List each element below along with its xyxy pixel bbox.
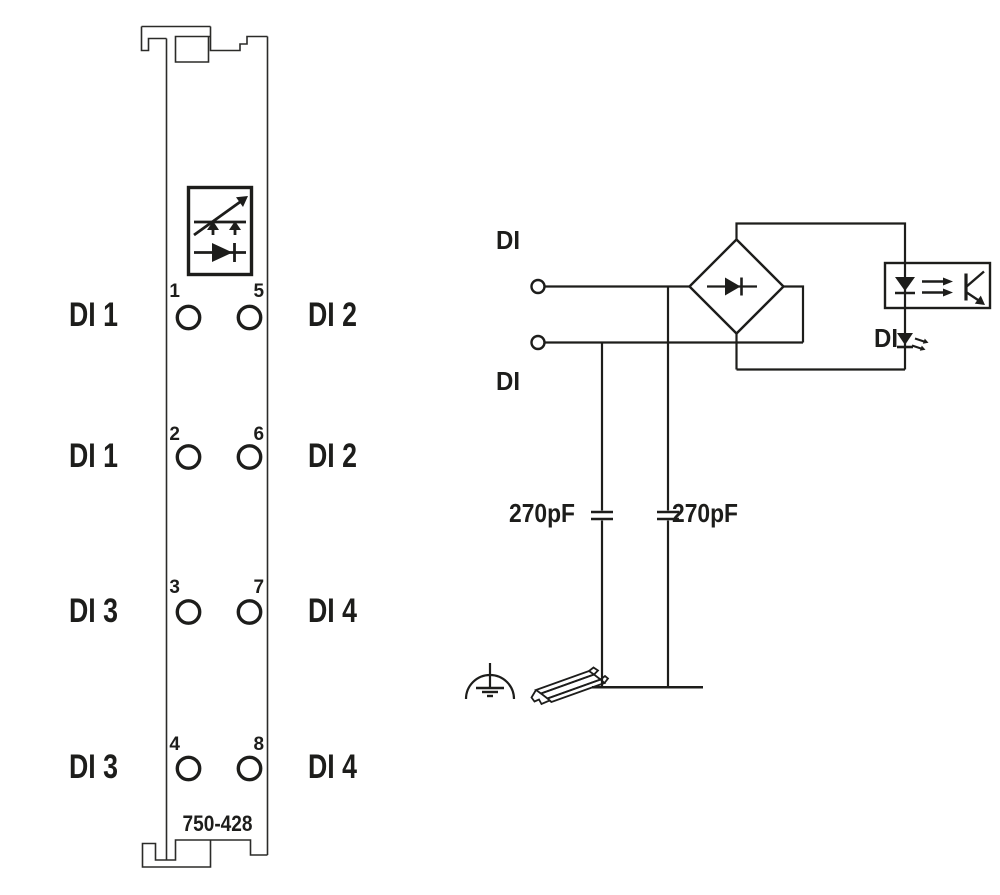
terminal-7 — [238, 601, 260, 623]
terminal-4 — [177, 757, 199, 779]
input-label-top: DI — [496, 225, 520, 255]
optocoupler-icon-diagonal — [194, 202, 240, 235]
module-terminals — [177, 306, 260, 779]
terminal-8 — [238, 757, 260, 779]
channel-label: DI 2 — [308, 296, 357, 334]
optocoupler-box — [885, 263, 990, 308]
earth-symbol — [466, 663, 514, 699]
channel-label: DI 4 — [308, 592, 357, 630]
channel-label: DI 3 — [69, 592, 118, 630]
phototransistor-collector — [966, 272, 984, 288]
terminal-3 — [177, 601, 199, 623]
diode-icon-triangle — [212, 243, 233, 262]
opto-light-arrow1-head — [943, 278, 953, 286]
schematic — [466, 224, 990, 705]
bridge-diode-triangle — [725, 278, 741, 296]
channel-label: DI 1 — [69, 296, 118, 334]
terminal-5 — [238, 306, 260, 328]
terminal-number: 6 — [254, 424, 265, 445]
capacitor-left-value: 270pF — [509, 498, 575, 528]
module-top-notch — [176, 37, 211, 63]
phototransistor-emitter — [966, 292, 978, 300]
terminal-number: 1 — [169, 281, 180, 302]
opto-light-arrow2-head — [943, 289, 953, 297]
terminal-number: 8 — [254, 734, 265, 755]
terminal-2 — [177, 446, 199, 468]
channel-label: DI 4 — [308, 748, 357, 786]
status-led-triangle — [897, 333, 913, 345]
input-terminal-bottom — [532, 336, 545, 349]
module-top-left-hook — [142, 27, 167, 51]
status-led-ray2 — [912, 346, 921, 349]
input-label-bottom: DI — [496, 366, 520, 396]
channel-label: DI 1 — [69, 437, 118, 475]
wiring-diagram-page: DI 1 1 5 DI 2 DI 1 2 6 DI 2 DI 3 3 7 DI … — [0, 0, 1000, 895]
wire-bridge-top-to-opto — [737, 224, 906, 264]
din-rail-icon — [532, 668, 609, 705]
module-function-icon — [189, 188, 252, 275]
capacitor-right-value: 270pF — [672, 498, 738, 528]
channel-label: DI 2 — [308, 437, 357, 475]
input-terminal-top — [532, 280, 545, 293]
module-bottom-outline — [143, 840, 268, 867]
status-led-label: DI — [874, 323, 898, 353]
wire-bridge-right-down — [784, 287, 804, 343]
module-top-right-steps — [211, 27, 268, 51]
diagram-canvas: DI 1 1 5 DI 2 DI 1 2 6 DI 2 DI 3 3 7 DI … — [0, 0, 1000, 895]
terminal-6 — [238, 446, 260, 468]
part-number: 750-428 — [183, 811, 253, 836]
status-led-ray1 — [915, 339, 924, 342]
terminal-number: 3 — [169, 577, 180, 598]
terminal-number: 5 — [254, 281, 265, 302]
terminal-number: 2 — [169, 424, 180, 445]
terminal-number: 4 — [169, 734, 180, 755]
optocoupler-icon-diagonal-head — [236, 196, 248, 207]
terminal-1 — [177, 306, 199, 328]
opto-led-triangle — [895, 277, 915, 291]
terminal-number: 7 — [254, 577, 265, 598]
channel-label: DI 3 — [69, 748, 118, 786]
din-rail-left-end — [532, 690, 552, 704]
